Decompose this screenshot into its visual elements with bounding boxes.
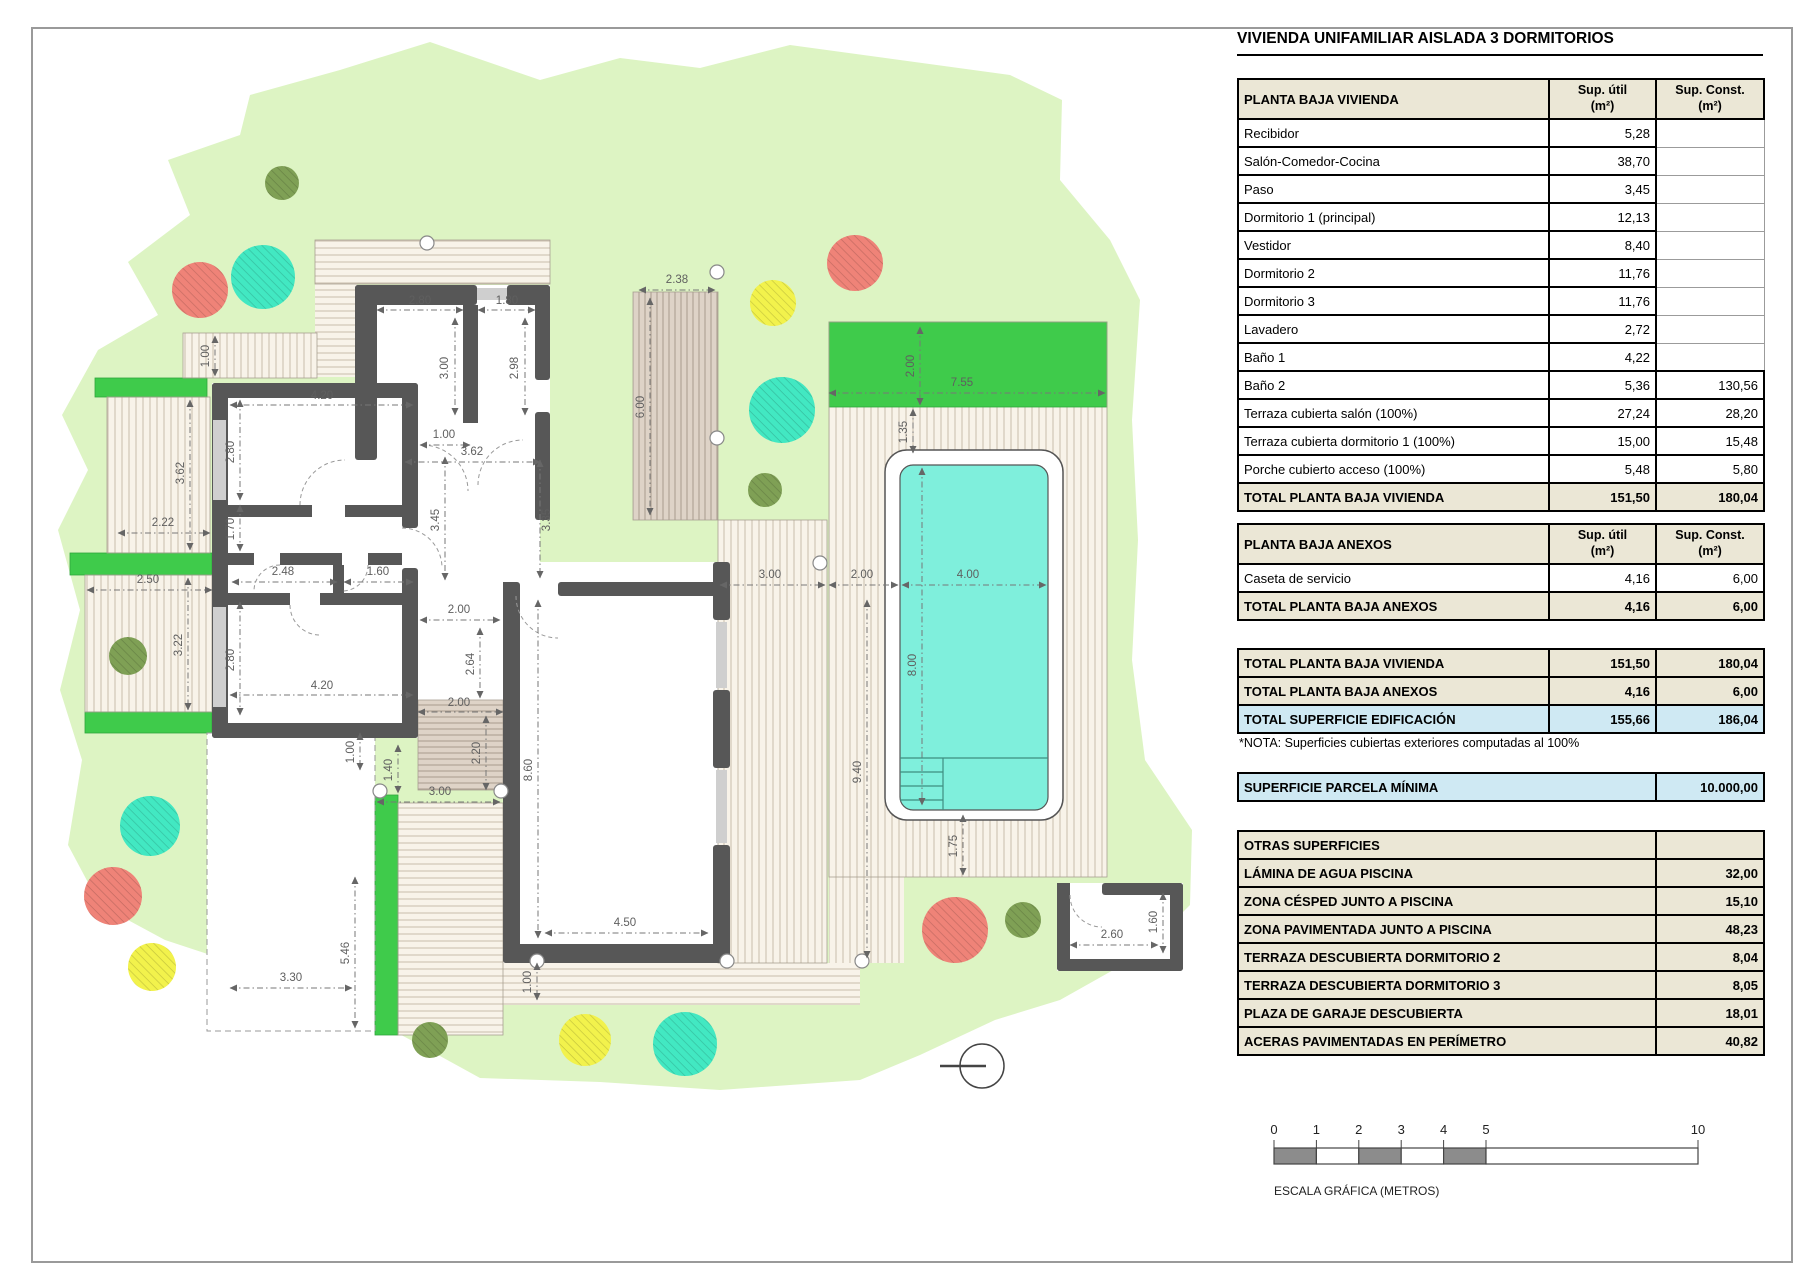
dimension-label: 2.20 (471, 742, 483, 764)
row-value: 12,13 (1549, 203, 1656, 231)
dimension-label: 2.98 (509, 357, 521, 379)
row-label: TERRAZA DESCUBIERTA DORMITORIO 3 (1238, 971, 1656, 999)
page-title: VIVIENDA UNIFAMILIAR AISLADA 3 DORMITORI… (1237, 30, 1763, 56)
totals-summary-table: TOTAL PLANTA BAJA VIVIENDA151,50180,04TO… (1237, 648, 1765, 734)
scale-tick-label: 3 (1398, 1122, 1405, 1137)
dimension-label: 1.80 (496, 295, 518, 307)
row-value: 8,04 (1656, 943, 1764, 971)
table-row: TERRAZA DESCUBIERTA DORMITORIO 38,05 (1238, 971, 1764, 999)
table-header-row: PLANTA BAJA ANEXOS Sup. útil (m²) Sup. C… (1238, 524, 1764, 564)
dimension-label: 1.00 (522, 971, 534, 993)
parcela-value: 10.000,00 (1656, 773, 1764, 801)
table-row: SUPERFICIE PARCELA MÍNIMA 10.000,00 (1238, 773, 1764, 801)
tree-hatch (827, 235, 883, 291)
row-value: 15,00 (1549, 427, 1656, 455)
row-value: 4,22 (1549, 343, 1656, 371)
dimension-label: 1.00 (433, 429, 455, 441)
table-row: TOTAL PLANTA BAJA VIVIENDA151,50180,04 (1238, 483, 1764, 511)
tree-hatch (84, 867, 142, 925)
row-label: Terraza cubierta salón (100%) (1238, 399, 1549, 427)
tree-hatch (128, 943, 176, 991)
table-row: LÁMINA DE AGUA PISCINA32,00 (1238, 859, 1764, 887)
row-value (1656, 259, 1764, 287)
table-row: Caseta de servicio4,166,00 (1238, 564, 1764, 592)
otras-superficies-table: OTRAS SUPERFICIES LÁMINA DE AGUA PISCINA… (1237, 830, 1765, 1056)
table-row: Paso3,45 (1238, 175, 1764, 203)
row-label: ZONA CÉSPED JUNTO A PISCINA (1238, 887, 1656, 915)
table-row: Lavadero2,72 (1238, 315, 1764, 343)
scale-segment (1274, 1148, 1316, 1164)
dimension-label: 1.70 (225, 518, 237, 540)
table-row: TOTAL PLANTA BAJA VIVIENDA151,50180,04 (1238, 649, 1764, 677)
dimension-label: 2.64 (465, 652, 477, 675)
dimension-label: 1.35 (898, 421, 910, 443)
scale-tick-label: 4 (1440, 1122, 1447, 1137)
table-row: TOTAL PLANTA BAJA ANEXOS4,166,00 (1238, 592, 1764, 620)
row-value: 5,48 (1549, 455, 1656, 483)
row-label: Vestidor (1238, 231, 1549, 259)
parcela-minima-table: SUPERFICIE PARCELA MÍNIMA 10.000,00 (1237, 772, 1765, 802)
scale-tick-label: 5 (1482, 1122, 1489, 1137)
table-row: Dormitorio 1 (principal)12,13 (1238, 203, 1764, 231)
row-label: PLAZA DE GARAJE DESCUBIERTA (1238, 999, 1656, 1027)
scale-tick-label: 1 (1313, 1122, 1320, 1137)
dimension-label: 2.22 (152, 517, 174, 529)
dimension-label: 2.00 (448, 697, 470, 709)
dimension-label: 4.00 (957, 569, 979, 581)
dimension-label: 3.45 (430, 509, 442, 531)
row-label: Dormitorio 3 (1238, 287, 1549, 315)
row-value: 38,70 (1549, 147, 1656, 175)
dimension-label: 1.40 (383, 759, 395, 781)
dimension-label: 2.00 (851, 569, 873, 581)
scale-segment (1359, 1148, 1401, 1164)
row-label: LÁMINA DE AGUA PISCINA (1238, 859, 1656, 887)
row-value: 5,28 (1549, 119, 1656, 147)
table-row: TOTAL SUPERFICIE EDIFICACIÓN155,66186,04 (1238, 705, 1764, 733)
row-label: Paso (1238, 175, 1549, 203)
table-title: PLANTA BAJA VIVIENDA (1238, 79, 1549, 119)
row-label: Dormitorio 1 (principal) (1238, 203, 1549, 231)
row-label: Recibidor (1238, 119, 1549, 147)
tree-hatch (109, 637, 147, 675)
tree-hatch (1005, 902, 1041, 938)
row-label: ACERAS PAVIMENTADAS EN PERÍMETRO (1238, 1027, 1656, 1055)
dimension-label: 2.50 (137, 574, 159, 586)
dimension-label: 2.80 (225, 441, 237, 463)
table-title: OTRAS SUPERFICIES (1238, 831, 1656, 859)
table-header-row: OTRAS SUPERFICIES (1238, 831, 1764, 859)
row-value: 180,04 (1656, 649, 1764, 677)
table-row: Terraza cubierta salón (100%)27,2428,20 (1238, 399, 1764, 427)
row-value (1656, 343, 1764, 371)
plan-sheet: 2.801.803.002.982.381.004.202.803.622.22… (0, 0, 1800, 1272)
scale-segment (1486, 1148, 1698, 1164)
table-row: Baño 25,36130,56 (1238, 371, 1764, 399)
row-value: 3,45 (1549, 175, 1656, 203)
dimension-label: 2.80 (225, 649, 237, 671)
dimension-label: 3.22 (173, 634, 185, 656)
tree-hatch (231, 245, 295, 309)
area-table-planta-baja-anexos: PLANTA BAJA ANEXOS Sup. útil (m²) Sup. C… (1237, 523, 1765, 621)
row-value: 4,16 (1549, 592, 1656, 620)
dimension-label: 2.00 (448, 604, 470, 616)
tree-hatch (265, 166, 299, 200)
row-value: 15,48 (1656, 427, 1764, 455)
dimension-label: 9.40 (852, 761, 864, 783)
column-header-sup-util: Sup. útil (m²) (1549, 79, 1656, 119)
table-row: TERRAZA DESCUBIERTA DORMITORIO 28,04 (1238, 943, 1764, 971)
row-value: 28,20 (1656, 399, 1764, 427)
row-label: Caseta de servicio (1238, 564, 1549, 592)
row-value: 11,76 (1549, 287, 1656, 315)
deck-stripes (718, 520, 827, 963)
tree-hatch (559, 1014, 611, 1066)
table-header-row: PLANTA BAJA VIVIENDA Sup. útil (m²) Sup.… (1238, 79, 1764, 119)
parcela-label: SUPERFICIE PARCELA MÍNIMA (1238, 773, 1656, 801)
footnote: *NOTA: Superficies cubiertas exteriores … (1239, 736, 1765, 750)
scale-tick-label: 0 (1270, 1122, 1277, 1137)
tree-hatch (412, 1022, 448, 1058)
grass-strip (85, 712, 212, 733)
table-row: ZONA CÉSPED JUNTO A PISCINA15,10 (1238, 887, 1764, 915)
dimension-label: 3.35 (541, 509, 553, 531)
scale-segment (1444, 1148, 1486, 1164)
dimension-label: 3.62 (175, 462, 187, 484)
grass-strip (375, 795, 398, 1035)
tree-hatch (172, 262, 228, 318)
grass-strip (95, 378, 207, 397)
row-value: 4,16 (1549, 564, 1656, 592)
dimension-label: 2.00 (905, 355, 917, 377)
row-value: 8,05 (1656, 971, 1764, 999)
table-row: Baño 14,22 (1238, 343, 1764, 371)
row-value: 151,50 (1549, 483, 1656, 511)
dimension-label: 4.50 (614, 917, 636, 929)
dimension-label: 1.75 (948, 835, 960, 857)
row-value (1656, 315, 1764, 343)
row-label: Baño 1 (1238, 343, 1549, 371)
area-table-planta-baja-vivienda: PLANTA BAJA VIVIENDA Sup. útil (m²) Sup.… (1237, 78, 1765, 512)
row-value: 186,04 (1656, 705, 1764, 733)
row-label: Baño 2 (1238, 371, 1549, 399)
table-row: Porche cubierto acceso (100%)5,485,80 (1238, 455, 1764, 483)
empty-header-cell (1656, 831, 1764, 859)
tree-hatch (748, 473, 782, 507)
row-value: 6,00 (1656, 592, 1764, 620)
table-title: PLANTA BAJA ANEXOS (1238, 524, 1549, 564)
tree-hatch (120, 796, 180, 856)
dimension-label: 1.00 (200, 345, 212, 367)
row-value: 15,10 (1656, 887, 1764, 915)
table-row: Dormitorio 211,76 (1238, 259, 1764, 287)
tree-hatch (653, 1012, 717, 1076)
row-value (1656, 287, 1764, 315)
grass-strip (70, 553, 212, 575)
deck-stripes (418, 700, 503, 790)
row-label: Salón-Comedor-Cocina (1238, 147, 1549, 175)
deck-stripes (315, 284, 357, 377)
row-value: 6,00 (1656, 677, 1764, 705)
dimension-label: 3.00 (429, 786, 451, 798)
table-row: Salón-Comedor-Cocina38,70 (1238, 147, 1764, 175)
dimension-label: 4.20 (311, 390, 333, 402)
deck-stripes (107, 397, 210, 553)
row-label: ZONA PAVIMENTADA JUNTO A PISCINA (1238, 915, 1656, 943)
deck-stripes (398, 803, 503, 1035)
row-value: 11,76 (1549, 259, 1656, 287)
grass-strip (829, 322, 1107, 407)
dimension-label: 8.60 (523, 759, 535, 781)
table-row: Vestidor8,40 (1238, 231, 1764, 259)
tree-hatch (750, 280, 796, 326)
dimension-label: 1.60 (1148, 911, 1160, 933)
scale-segment (1401, 1148, 1443, 1164)
row-label: TERRAZA DESCUBIERTA DORMITORIO 2 (1238, 943, 1656, 971)
dimension-label: 2.48 (272, 566, 294, 578)
dimension-label: 2.60 (1101, 929, 1123, 941)
dimension-label: 3.62 (461, 446, 483, 458)
row-value: 2,72 (1549, 315, 1656, 343)
table-row: TOTAL PLANTA BAJA ANEXOS4,166,00 (1238, 677, 1764, 705)
row-value: 151,50 (1549, 649, 1656, 677)
compass-marker (940, 1044, 1004, 1088)
row-value: 8,40 (1549, 231, 1656, 259)
dimension-label: 7.55 (951, 377, 973, 389)
row-value (1656, 147, 1764, 175)
dimension-label: 4.20 (311, 680, 333, 692)
row-label: TOTAL SUPERFICIE EDIFICACIÓN (1238, 705, 1549, 733)
row-label: Terraza cubierta dormitorio 1 (100%) (1238, 427, 1549, 455)
dimension-label: 2.80 (409, 295, 431, 307)
table-row: Recibidor5,28 (1238, 119, 1764, 147)
row-value: 48,23 (1656, 915, 1764, 943)
dimension-label: 3.30 (280, 972, 302, 984)
row-value (1656, 119, 1764, 147)
row-value: 155,66 (1549, 705, 1656, 733)
row-label: Porche cubierto acceso (100%) (1238, 455, 1549, 483)
column-header-sup-util: Sup. útil (m²) (1549, 524, 1656, 564)
column-header-sup-const: Sup. Const. (m²) (1656, 524, 1764, 564)
dimension-label: 3.00 (759, 569, 781, 581)
scale-tick-label: 10 (1691, 1122, 1705, 1137)
row-label: Lavadero (1238, 315, 1549, 343)
dimension-label: 2.38 (666, 274, 688, 286)
row-label: Dormitorio 2 (1238, 259, 1549, 287)
dimension-label: 3.00 (439, 357, 451, 379)
tree-hatch (922, 897, 988, 963)
row-value: 32,00 (1656, 859, 1764, 887)
row-value: 130,56 (1656, 371, 1764, 399)
dimension-label: 5.46 (340, 942, 352, 964)
dimension-label: 8.00 (907, 654, 919, 676)
dimension-label: 6.00 (635, 396, 647, 418)
row-value: 5,80 (1656, 455, 1764, 483)
deck-stripes (503, 963, 860, 1005)
row-value: 5,36 (1549, 371, 1656, 399)
row-label: TOTAL PLANTA BAJA ANEXOS (1238, 677, 1549, 705)
pool (885, 450, 1063, 820)
row-value: 6,00 (1656, 564, 1764, 592)
table-row: PLAZA DE GARAJE DESCUBIERTA18,01 (1238, 999, 1764, 1027)
table-row: ACERAS PAVIMENTADAS EN PERÍMETRO40,82 (1238, 1027, 1764, 1055)
row-value (1656, 175, 1764, 203)
tree-hatch (749, 377, 815, 443)
deck-stripes (85, 575, 212, 712)
scale-caption: ESCALA GRÁFICA (METROS) (1274, 1184, 1439, 1198)
row-value: 40,82 (1656, 1027, 1764, 1055)
scale-segment (1316, 1148, 1358, 1164)
row-label: TOTAL PLANTA BAJA VIVIENDA (1238, 483, 1549, 511)
row-value (1656, 203, 1764, 231)
row-value (1656, 231, 1764, 259)
row-label: TOTAL PLANTA BAJA VIVIENDA (1238, 649, 1549, 677)
row-value: 180,04 (1656, 483, 1764, 511)
column-header-sup-const: Sup. Const. (m²) (1656, 79, 1764, 119)
row-value: 4,16 (1549, 677, 1656, 705)
row-label: TOTAL PLANTA BAJA ANEXOS (1238, 592, 1549, 620)
scale-tick-label: 2 (1355, 1122, 1362, 1137)
table-row: Dormitorio 311,76 (1238, 287, 1764, 315)
dimension-label: 1.00 (345, 741, 357, 763)
row-value: 18,01 (1656, 999, 1764, 1027)
table-row: ZONA PAVIMENTADA JUNTO A PISCINA48,23 (1238, 915, 1764, 943)
dimension-label: 1.60 (367, 566, 389, 578)
scale-bar: 01234510 (1270, 1122, 1705, 1164)
row-value: 27,24 (1549, 399, 1656, 427)
table-row: Terraza cubierta dormitorio 1 (100%)15,0… (1238, 427, 1764, 455)
